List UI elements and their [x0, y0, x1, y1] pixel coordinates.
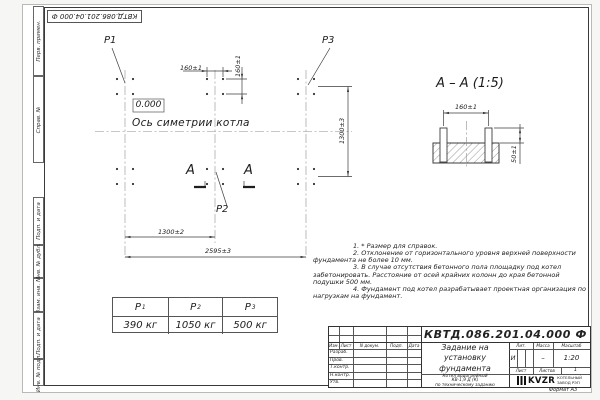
col-header-data: Дата [407, 342, 421, 349]
row-razrab: Разраб. [330, 349, 353, 357]
mass-value: – [533, 349, 553, 367]
anchor-bolt-left [440, 128, 447, 162]
dim-row-spacing: 1300±3 [338, 118, 348, 144]
dim-total-width: 2595±3 [203, 247, 233, 255]
dim-bolt-spacing-v: 160±1 [234, 53, 244, 79]
row-prov: Пров. [330, 357, 353, 365]
col-header-izm: Изм. [329, 342, 339, 349]
sheet-label: Лист [509, 367, 533, 374]
col-header-list: Лист [339, 342, 353, 349]
mass-label: Масса [533, 342, 553, 349]
load-table-value-p1: 390 кг [113, 316, 168, 334]
load-table-value-p2: 1050 кг [168, 316, 223, 334]
section-letter-right: А [244, 163, 253, 178]
row-nkontr: Н.контр. [330, 372, 353, 380]
note-2: 2. Отклонение от горизонтального уровня … [313, 250, 591, 264]
lit-value: И [509, 349, 517, 367]
sheets-label: Листов [533, 367, 561, 374]
drawing-title: Задание на установку фундамента [421, 343, 509, 374]
row-utv: Утв. [330, 379, 353, 387]
company-description: КОТЕЛЬНЫЙ ЗАВОД РЭП [557, 376, 582, 385]
col-header-ndokum: N докум. [353, 342, 386, 349]
section-letter-left: А [186, 163, 195, 178]
dim-section-bolt-spacing: 160±1 [452, 103, 480, 111]
load-point-p3-label: P3 [322, 35, 334, 46]
load-table-header-p2: P2 [168, 298, 223, 316]
sheets-value: 1 [561, 367, 590, 374]
format-label: Формат А3 [533, 387, 593, 393]
load-point-p1-label: P1 [104, 35, 116, 46]
note-4: 4. Фундамент под котел разрабатывает про… [313, 286, 591, 300]
load-table-value-p3: 500 кг [222, 316, 277, 334]
load-table: P1 P2 P3 390 кг 1050 кг 500 кг [112, 297, 278, 333]
row-tkontr: Т.контр. [330, 364, 353, 372]
load-point-p2-label: P2 [216, 204, 228, 215]
dim-column-spacing: 1300±2 [157, 228, 185, 236]
doc-number: КВТД.086.201.04.000 Ф [421, 327, 590, 342]
scale-value: 1:20 [553, 349, 590, 367]
elevation-value: 0.000 [133, 99, 164, 112]
kvzr-logo-icon [517, 376, 526, 385]
dim-bolt-spacing-h: 160±1 [178, 64, 204, 72]
company-logo-row: KVZR КОТЕЛЬНЫЙ ЗАВОД РЭП [509, 374, 590, 387]
load-table-header-p1: P1 [113, 298, 168, 316]
lit-label: Лит. [509, 342, 533, 349]
drawing-subtitle: Котел водогрейный КВ-1,9 Д (К) по технич… [421, 375, 509, 389]
anchor-bolt-right [485, 128, 492, 162]
dim-section-protrusion: 50±1 [510, 141, 520, 167]
load-table-header-p3: P3 [222, 298, 277, 316]
col-header-podp: Подп. [386, 342, 407, 349]
section-view-title: А – А (1:5) [428, 76, 512, 91]
title-block: КВТД.086.201.04.000 Ф Изм. Лист N докум.… [328, 326, 591, 388]
note-3: 3. В случае отсутствия бетонного пола пл… [313, 264, 591, 285]
notes-block: 1. * Размер для справок. 2. Отклонение о… [313, 243, 591, 300]
company-name: KVZR [528, 376, 555, 386]
boiler-symmetry-axis-label: Ось симетрии котла [132, 117, 250, 129]
drawing-page: КВТД.086.201.04.000 Ф Перв. примен. Спра… [0, 0, 600, 400]
scale-label: Масштаб [553, 342, 590, 349]
